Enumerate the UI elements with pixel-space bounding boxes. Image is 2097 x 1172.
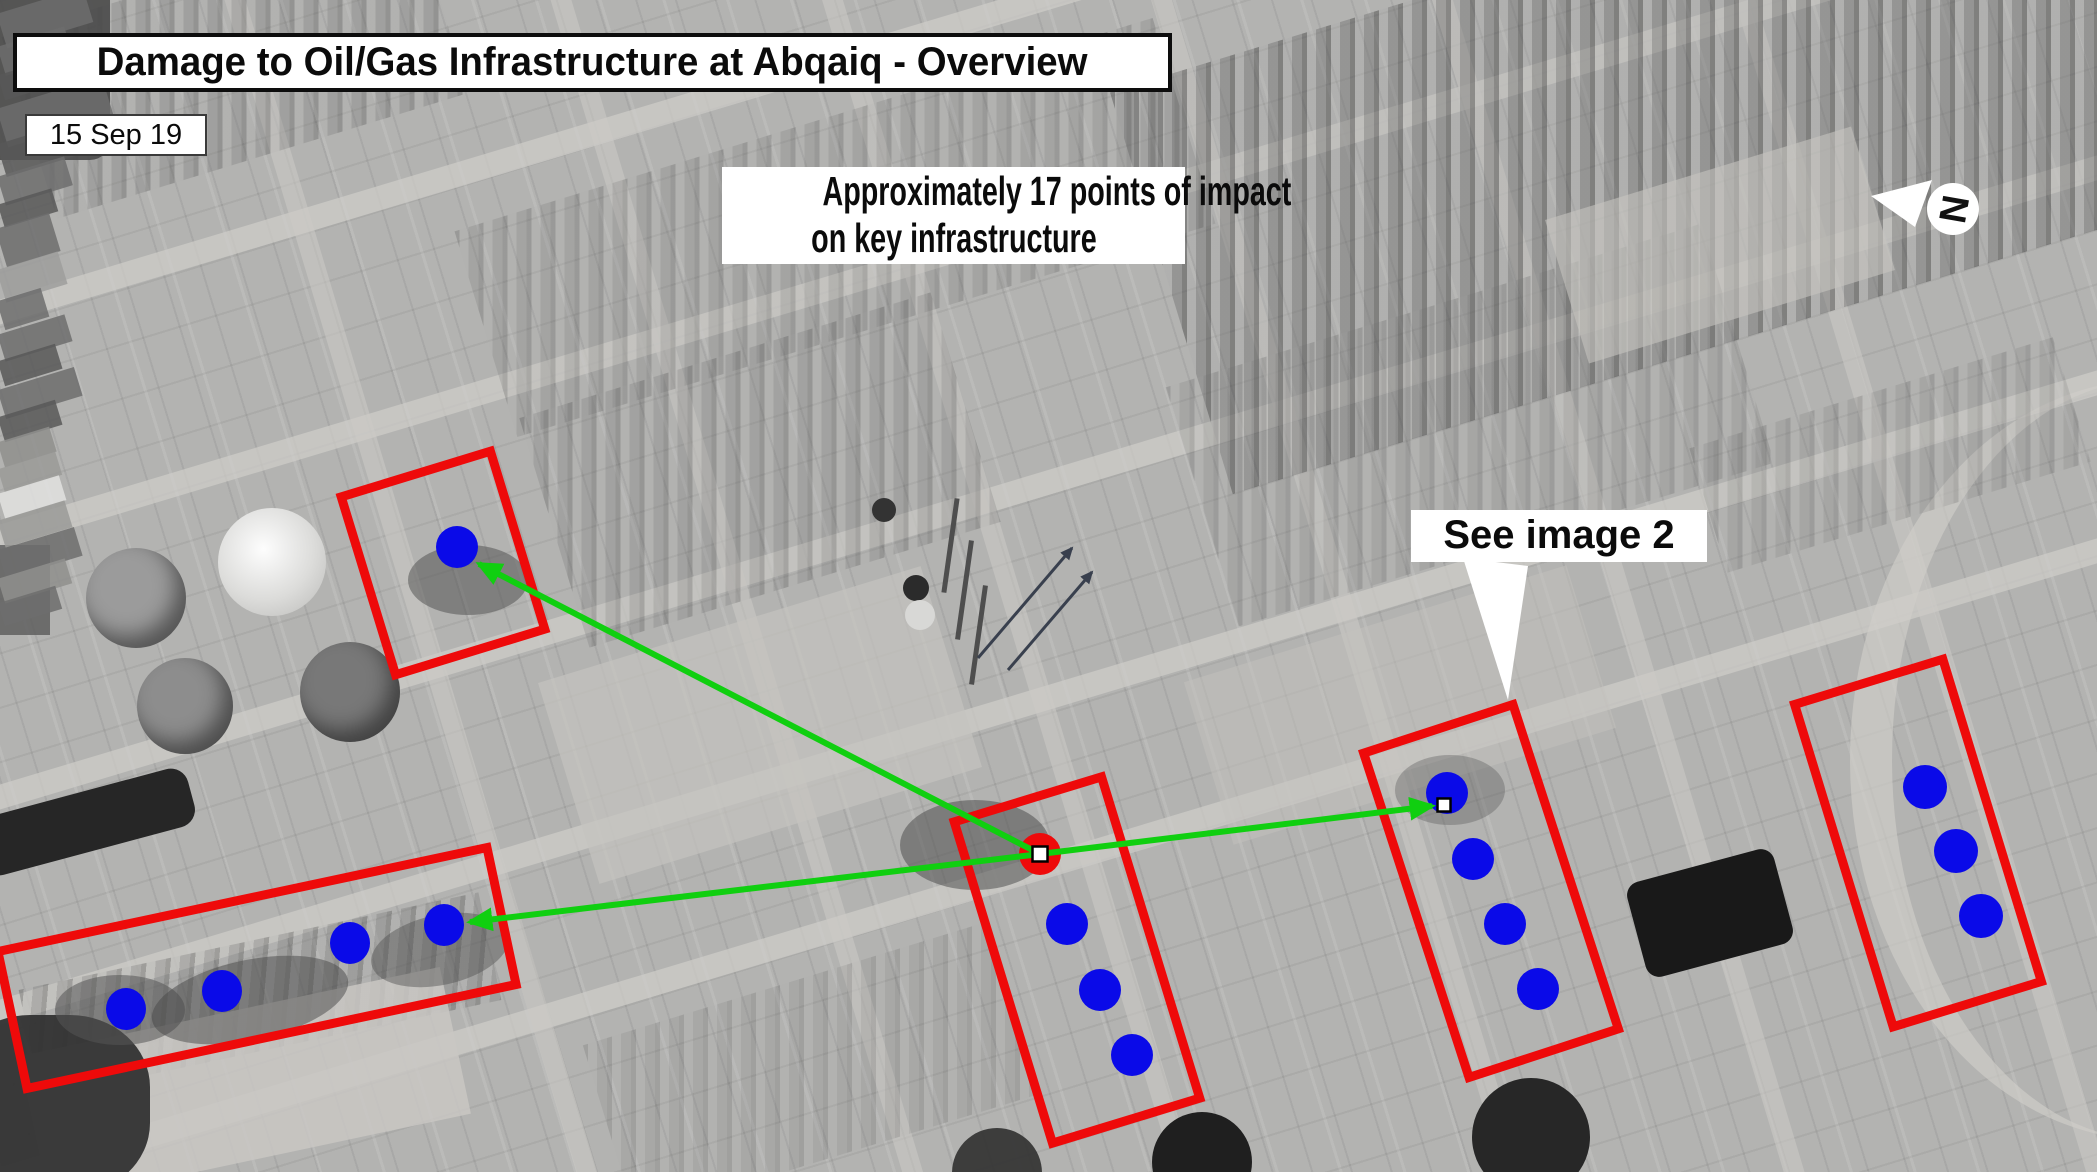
impact-point-13 [1903, 765, 1947, 809]
date-badge: 15 Sep 19 [25, 114, 207, 156]
page-title: Damage to Oil/Gas Infrastructure at Abqa… [97, 37, 1088, 88]
callout-text: See image 2 [1443, 513, 1674, 557]
title-box: Damage to Oil/Gas Infrastructure at Abqa… [13, 33, 1172, 92]
trajectory-arrow-1 [479, 564, 1040, 854]
impact-note-box: Approximately 17 points of impact on key… [722, 167, 1185, 264]
impact-point-12 [1517, 968, 1559, 1010]
damage-area-northwest-processing [341, 451, 545, 674]
impact-point-6 [1046, 903, 1088, 945]
impact-point-5 [424, 904, 464, 946]
impact-point-7 [1079, 969, 1121, 1011]
trajectory-arrow-2 [470, 854, 1040, 922]
imagery-arrow [1008, 572, 1092, 670]
impact-point-1 [436, 526, 478, 568]
impact-point-3 [202, 970, 242, 1012]
reference-square-2 [1438, 799, 1451, 812]
image-date: 15 Sep 19 [50, 119, 182, 151]
callout-tail [1463, 558, 1528, 700]
impact-note-line2: on key infrastructure [722, 215, 1185, 262]
impact-note-line1: Approximately 17 points of impact [722, 168, 1185, 215]
see-image-2-callout: See image 2 [1411, 510, 1707, 562]
damage-area-west-stabilization-train [0, 848, 516, 1089]
reference-square-1 [1033, 847, 1048, 862]
impact-point-4 [330, 922, 370, 964]
trajectory-arrow-3 [1040, 806, 1432, 854]
impact-point-8 [1111, 1034, 1153, 1076]
impact-point-2 [106, 988, 146, 1030]
impact-point-15 [1959, 894, 2003, 938]
impact-point-10 [1452, 838, 1494, 880]
impact-point-14 [1934, 829, 1978, 873]
imagery-arrow [978, 548, 1072, 658]
satellite-overview-image: N Damage to Oil/Gas Infrastructure at Ab… [0, 0, 2097, 1172]
damage-area-far-east-spheroid-row [1795, 659, 2042, 1027]
damage-area-east-spheroid-row [1364, 705, 1619, 1078]
impact-point-11 [1484, 903, 1526, 945]
north-arrow-icon [1871, 180, 1932, 227]
